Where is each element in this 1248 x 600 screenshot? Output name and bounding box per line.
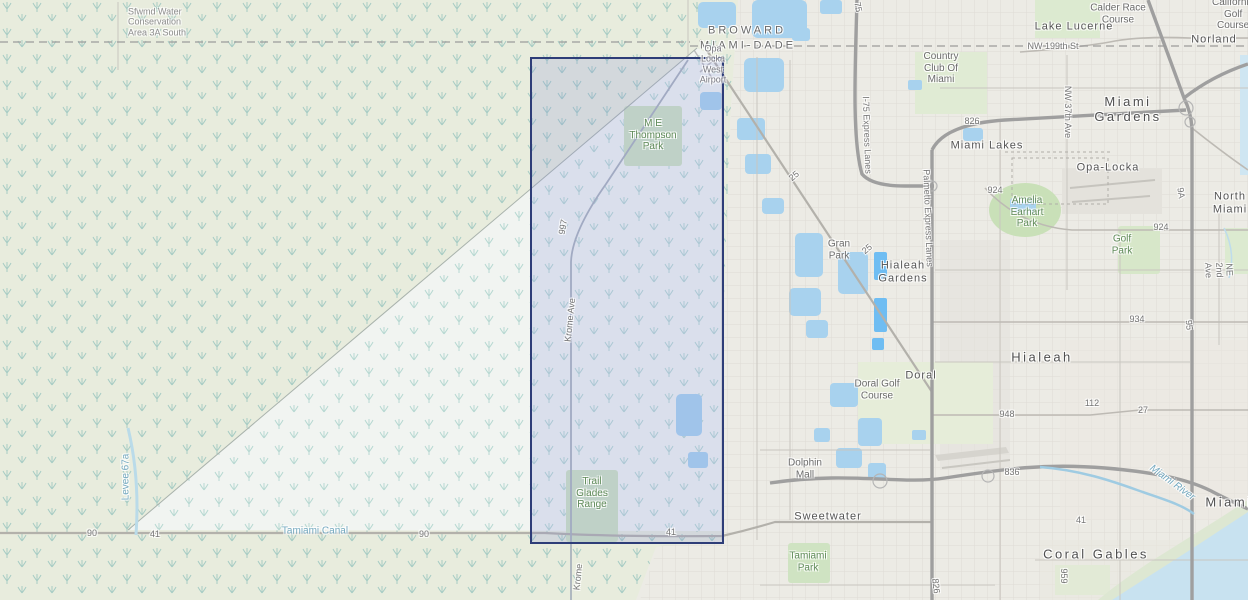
label-dolphin-mall: Dolphin Mall	[788, 458, 822, 481]
label-miami-river: Miami River	[1147, 463, 1196, 503]
label-doral: Doral	[905, 370, 936, 383]
label-route-41-west: 41	[150, 529, 160, 539]
label-route-41-mid: 41	[666, 527, 676, 537]
label-amelia-earhart-park: Amelia Earhart Park	[1011, 195, 1044, 230]
label-miami-lakes: Miami Lakes	[951, 140, 1024, 153]
map-viewport[interactable]: Sfwmd Water Conservation Area 3A SouthBR…	[0, 0, 1248, 600]
label-water-conservation-area: Sfwmd Water Conservation Area 3A South	[128, 6, 186, 37]
label-tamiami-canal: Tamiami Canal	[282, 525, 348, 537]
label-route-826-south: 826	[930, 578, 942, 594]
label-doral-golf-course: Doral Golf Course	[854, 379, 899, 402]
label-route-25-south: 25	[860, 242, 874, 256]
label-road-997: 997	[557, 219, 570, 236]
label-sweetwater: Sweetwater	[794, 511, 861, 524]
label-coral-gables: Coral Gables	[1043, 548, 1149, 563]
label-lake-lucerne: Lake Lucerne	[1035, 21, 1114, 34]
label-miami-gardens: Miami Gardens	[1068, 95, 1188, 125]
label-route-826-top: 826	[964, 116, 979, 126]
label-levee-67a: Levee 67a	[120, 454, 132, 501]
label-route-9a: 9A	[1175, 187, 1187, 199]
label-route-934: 934	[1129, 314, 1144, 324]
label-ne-2nd-ave: NE 2nd Ave	[1203, 255, 1235, 285]
label-route-27: 27	[1138, 405, 1148, 415]
label-route-90-west: 90	[87, 528, 97, 538]
label-route-924-east: 924	[1153, 222, 1168, 232]
label-north-miami: North Miami	[1212, 190, 1248, 215]
label-route-75: 75	[852, 1, 864, 13]
label-route-90-mid: 90	[419, 529, 429, 539]
label-krome-ave-south: Krome	[571, 563, 584, 590]
label-hialeah-gardens: Hialeah Gardens	[878, 259, 927, 284]
label-route-924-west: 924	[987, 185, 1002, 195]
label-krome-ave: Krome Ave	[563, 298, 578, 343]
label-route-836: 836	[1004, 467, 1019, 477]
label-route-95: 95	[1183, 319, 1194, 330]
label-miami: Miami	[1205, 496, 1248, 511]
label-route-112: 112	[1085, 398, 1099, 408]
label-route-41-east: 41	[1076, 515, 1086, 525]
label-palmetto-express-lanes: Palmetto Express Lanes	[921, 169, 935, 267]
label-route-948: 948	[999, 409, 1014, 419]
label-california-golf-course: California Golf Course	[1212, 0, 1248, 31]
label-hialeah: Hialeah	[1011, 351, 1073, 366]
label-tamiami-park: Tamiami Park	[789, 551, 826, 574]
label-i75-express-lanes: I-75 Express Lanes	[860, 96, 873, 174]
label-county-broward: BROWARD	[708, 25, 786, 38]
label-nw-37th-ave: NW 37th Ave	[1063, 86, 1073, 138]
label-nw-199th-st: NW 199th St	[1027, 41, 1078, 51]
label-norland: Norland	[1191, 34, 1237, 47]
label-gran-park: Gran Park	[828, 239, 850, 262]
label-me-thompson-park: M E Thompson Park	[629, 118, 676, 153]
label-golf-park: Golf Park	[1112, 234, 1133, 257]
label-route-25-north: 25	[787, 169, 801, 183]
label-country-club-of-miami: Country Club Of Miami	[923, 51, 958, 86]
map-labels-layer: Sfwmd Water Conservation Area 3A SouthBR…	[0, 0, 1248, 600]
label-trail-glades-range: Trail Glades Range	[576, 476, 608, 511]
label-route-959: 959	[1059, 568, 1069, 583]
label-opa-locka-west-airport: Opa Locka West Airport	[700, 43, 727, 84]
label-opa-locka: Opa-Locka	[1077, 162, 1140, 175]
